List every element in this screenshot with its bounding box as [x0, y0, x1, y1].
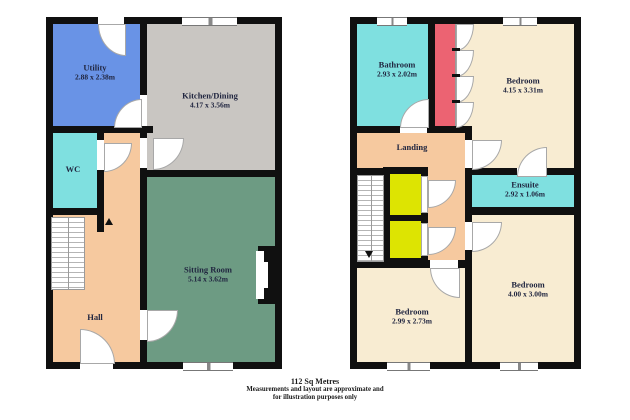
- label-utility: Utility 2.88 x 2.38m: [75, 62, 115, 81]
- stair-direction-down-icon: [365, 251, 373, 258]
- exterior-wall-right: [275, 17, 282, 369]
- first-floor-plan: Bathroom 2.93 x 2.02m Bedroom 4.15 x 3.3…: [350, 17, 581, 369]
- room-dims: 4.15 x 3.31m: [503, 86, 543, 95]
- exterior-wall-top: [46, 17, 282, 24]
- window-bedroom-1: [503, 17, 537, 26]
- exterior-wall-left: [350, 17, 357, 369]
- room-name: Hall: [87, 312, 103, 322]
- doorway-bedroom-2: [430, 260, 458, 268]
- stair-direction-up-icon: [105, 218, 113, 225]
- wall-wc-bottom: [46, 208, 104, 215]
- exterior-wall-bottom: [350, 362, 581, 369]
- room-dims: 5.14 x 3.62m: [184, 275, 232, 284]
- room-name: Utility: [75, 62, 115, 72]
- window-bedroom-3: [500, 362, 538, 371]
- label-sitting: Sitting Room 5.14 x 3.62m: [184, 264, 232, 283]
- room-dims: 2.99 x 2.73m: [392, 317, 432, 326]
- label-hall: Hall: [87, 312, 103, 322]
- wall-kitchen-sitting: [140, 170, 275, 177]
- label-ensuite: Ensuite 2.92 x 1.06m: [505, 179, 545, 198]
- room-name: Bedroom: [392, 306, 432, 316]
- exterior-wall-right: [574, 17, 581, 369]
- wall-bathroom-right: [428, 17, 435, 133]
- fireplace-hearth: [264, 262, 268, 288]
- total-area: 112 Sq Metres: [0, 377, 630, 386]
- wall-ensuite-bottom: [465, 207, 574, 215]
- room-dims: 4.00 x 3.00m: [508, 290, 548, 299]
- stair-rail: [371, 176, 372, 261]
- window-kitchen: [182, 17, 237, 26]
- exterior-wall-left: [46, 17, 53, 369]
- room-name: WC: [66, 164, 81, 174]
- cupboard-1-door-panel: [421, 176, 428, 213]
- doorway-hall-kitchen: [140, 138, 147, 168]
- room-name: Landing: [397, 142, 428, 152]
- label-bedroom-2: Bedroom 2.99 x 2.73m: [392, 306, 432, 325]
- doorway-bedroom-3: [465, 222, 472, 250]
- disclaimer-line-1: Measurements and layout are approximate …: [0, 386, 630, 394]
- cupboard-2-door-panel: [421, 223, 428, 256]
- caption: 112 Sq Metres Measurements and layout ar…: [0, 377, 630, 402]
- wardrobe-divider: [452, 48, 460, 51]
- window-bathroom: [377, 17, 407, 26]
- room-dims: 2.93 x 2.02m: [377, 70, 417, 79]
- floorplan-image: Utility 2.88 x 2.38m Kitchen/Dining 4.17…: [0, 0, 630, 420]
- room-name: Sitting Room: [184, 264, 232, 274]
- room-name: Bedroom: [508, 279, 548, 289]
- room-name: Kitchen/Dining: [182, 90, 238, 100]
- label-bathroom: Bathroom 2.93 x 2.02m: [377, 59, 417, 78]
- label-bedroom-3: Bedroom 4.00 x 3.00m: [508, 279, 548, 298]
- label-kitchen: Kitchen/Dining 4.17 x 3.56m: [182, 90, 238, 109]
- room-dims: 4.17 x 3.56m: [182, 101, 238, 110]
- window-sitting: [183, 362, 233, 371]
- cupboard-1: [390, 174, 421, 215]
- wardrobe-divider: [452, 100, 460, 103]
- stair-rail: [68, 218, 69, 289]
- staircase-first: [357, 175, 384, 262]
- cupboard-2: [390, 221, 421, 258]
- wall-stairs-top: [350, 168, 383, 175]
- room-dims: 2.88 x 2.38m: [75, 73, 115, 82]
- label-wc: WC: [66, 164, 81, 174]
- fireplace-recess: [256, 251, 264, 299]
- staircase-ground: [51, 217, 85, 290]
- wardrobe-divider: [452, 74, 460, 77]
- room-name: Ensuite: [505, 179, 545, 189]
- label-bedroom-1: Bedroom 4.15 x 3.31m: [503, 75, 543, 94]
- ground-floor-plan: Utility 2.88 x 2.38m Kitchen/Dining 4.17…: [46, 17, 282, 369]
- room-dims: 2.92 x 1.06m: [505, 190, 545, 199]
- doorway-bedroom-1: [465, 140, 472, 168]
- room-name: Bathroom: [377, 59, 417, 69]
- disclaimer-line-2: for illustration purposes only: [0, 394, 630, 402]
- doorway-utility-exterior: [98, 17, 124, 24]
- window-bedroom-2: [387, 362, 430, 371]
- doorway-wc: [97, 140, 104, 170]
- room-name: Bedroom: [503, 75, 543, 85]
- label-landing: Landing: [397, 142, 428, 152]
- doorway-hall-sitting: [140, 310, 147, 340]
